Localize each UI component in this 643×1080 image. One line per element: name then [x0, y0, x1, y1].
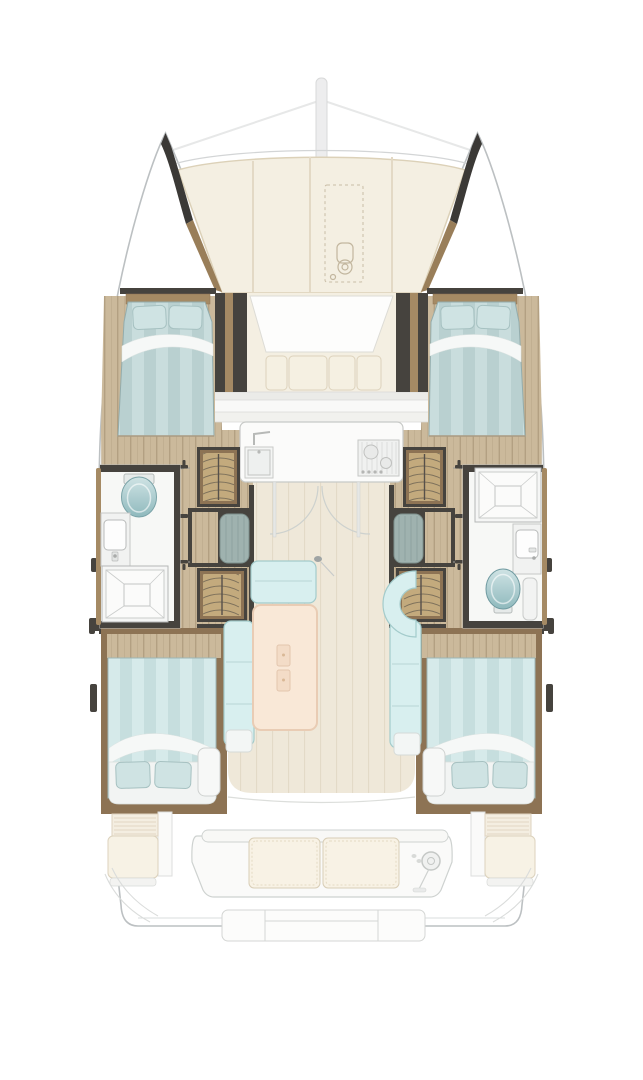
shower-column [523, 578, 537, 620]
companionway-steps [188, 508, 253, 567]
salon-starboard-bench [390, 621, 421, 748]
mast [316, 78, 327, 170]
forward-cockpit-cushions [266, 356, 381, 390]
catamaran-floor-plan [0, 0, 643, 1080]
aft-cabin [99, 624, 225, 812]
toilet [122, 474, 157, 517]
washbasin [101, 513, 130, 566]
dining-table [253, 605, 317, 730]
salon-port-bench [224, 621, 254, 746]
floor-plan-svg [0, 0, 643, 1080]
hull-cleats [89, 558, 97, 712]
windscreen-bands [215, 392, 428, 422]
washbasin [513, 524, 541, 574]
transom-steps [222, 910, 425, 941]
hanging-locker-aft [197, 568, 247, 622]
foredeck-sunpad [178, 157, 465, 293]
port-bathroom [96, 465, 180, 628]
shower-tray [102, 566, 168, 622]
shower-tray [475, 468, 541, 522]
forward-berth [118, 302, 214, 436]
salon-forward-bench [251, 561, 316, 603]
starboard-bathroom [463, 465, 547, 628]
aft-cockpit [192, 830, 452, 941]
galley-stove [358, 440, 399, 476]
hanging-locker-forward [197, 447, 240, 507]
aft-bench-cushions [249, 838, 399, 888]
aft-side-seat [108, 812, 172, 886]
helm-wheel [422, 852, 440, 870]
vanity-seat [198, 748, 220, 796]
